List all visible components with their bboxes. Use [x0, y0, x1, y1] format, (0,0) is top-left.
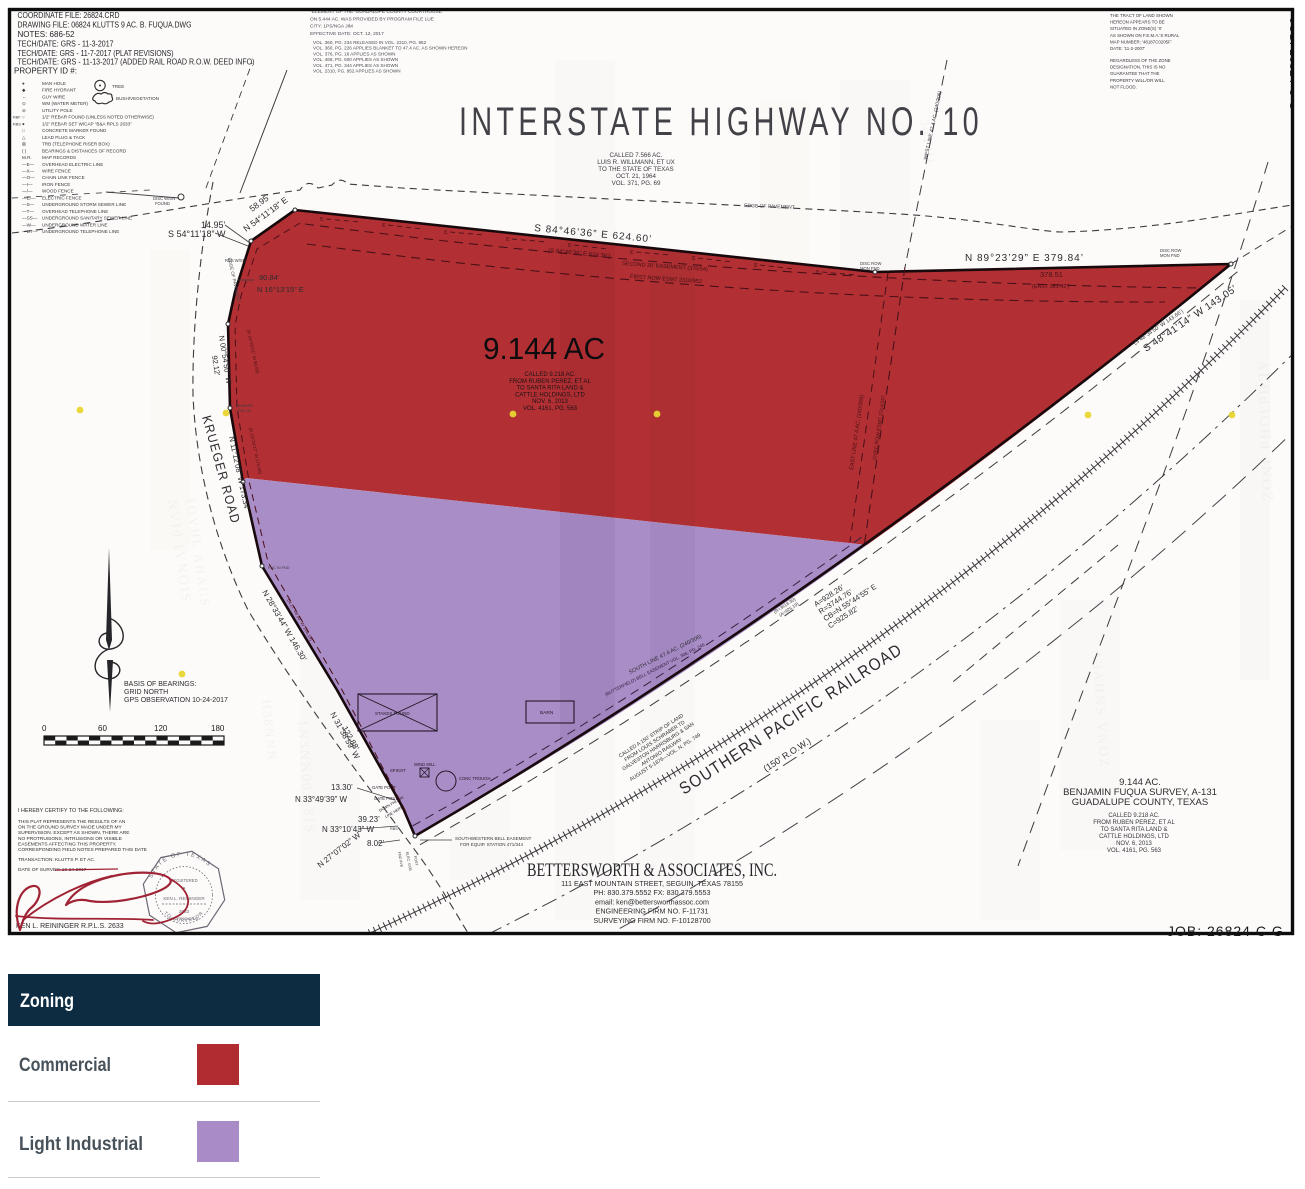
- svg-text:E: E: [692, 256, 696, 262]
- svg-text:CALLED 7.566 AC.: CALLED 7.566 AC.: [610, 152, 663, 159]
- svg-text:KEN L. REININGER R.P.L.S. 2633: KEN L. REININGER R.P.L.S. 2633: [16, 923, 124, 930]
- svg-text:NOT FLOOD.: NOT FLOOD.: [1110, 84, 1137, 89]
- svg-text:TO SANTA RITA LAND &: TO SANTA RITA LAND &: [1100, 827, 1167, 833]
- svg-text:FOR EQUIP. STATION 471/344: FOR EQUIP. STATION 471/344: [460, 842, 524, 847]
- svg-text:⊙: ⊙: [22, 101, 26, 106]
- svg-text:ENGINEERING FIRM NO. F-11731: ENGINEERING FIRM NO. F-11731: [596, 907, 709, 916]
- svg-text:REGARDLESS OF THE ZONE: REGARDLESS OF THE ZONE: [1110, 58, 1171, 63]
- svg-text:NOV. 6, 2013: NOV. 6, 2013: [532, 399, 568, 405]
- svg-text:PROPERTY WILL/OR WILL: PROPERTY WILL/OR WILL: [1110, 78, 1165, 83]
- svg-text:MAP RECORDS: MAP RECORDS: [42, 155, 76, 160]
- svg-text:—SS—: —SS—: [22, 216, 38, 221]
- svg-text:CHAIN LINK FENCE: CHAIN LINK FENCE: [42, 175, 85, 180]
- svg-text:email: ken@bettersworthassoc.c: email: ken@bettersworthassoc.com: [595, 897, 709, 906]
- svg-text:—O—: —O—: [22, 175, 35, 180]
- svg-text:NOV. 6, 2013: NOV. 6, 2013: [1116, 841, 1152, 847]
- svg-text:NO PROTRUSIONS, INTRUSIONS OR: NO PROTRUSIONS, INTRUSIONS OR VISIBLE: [18, 836, 122, 842]
- svg-text:—X—: —X—: [22, 168, 35, 173]
- svg-text:PROPERTY ID #:: PROPERTY ID #:: [14, 66, 77, 76]
- svg-text:←: ←: [22, 94, 27, 99]
- svg-text:ON THE GROUND SURVEY MADE UNDE: ON THE GROUND SURVEY MADE UNDER MY: [18, 825, 122, 831]
- svg-text:MAP NUMBER: '48187C0205F': MAP NUMBER: '48187C0205F': [1110, 39, 1172, 44]
- svg-text:VOL. 371, PG. 69: VOL. 371, PG. 69: [612, 180, 661, 187]
- svg-text:E: E: [320, 217, 324, 223]
- svg-text:TRANSACTION: KLUTTS P. ET AC.: TRANSACTION: KLUTTS P. ET AC.: [18, 857, 95, 863]
- svg-text:△: △: [22, 135, 26, 140]
- svg-text:GPS OBSERVATION 10-24-2017: GPS OBSERVATION 10-24-2017: [124, 697, 228, 704]
- svg-text:SPIGOT: SPIGOT: [390, 768, 406, 773]
- svg-text:—S—: —S—: [22, 202, 35, 207]
- svg-text:CONCRETE MARKER FOUND: CONCRETE MARKER FOUND: [42, 128, 107, 133]
- svg-text:60: 60: [98, 724, 107, 733]
- svg-text:VOL. 2310, PG. 952 APPLIES AS: VOL. 2310, PG. 952 APPLIES AS SHOWN: [313, 69, 401, 74]
- svg-text:SOUTHWESTERN BELL EASEMENT: SOUTHWESTERN BELL EASEMENT: [455, 836, 532, 841]
- svg-text:VOL. 360, PG. 234 RELEASED IN: VOL. 360, PG. 234 RELEASED IN VOL. 2310,…: [313, 40, 427, 45]
- svg-text:TECH/DATE: GRS - 11-3-2017: TECH/DATE: GRS - 11-3-2017: [18, 39, 114, 49]
- svg-text:RBF: RBF: [13, 116, 21, 120]
- svg-text:120: 120: [154, 724, 168, 733]
- svg-text:CORRESPONDING FIELD NOTES PREP: CORRESPONDING FIELD NOTES PREPARED THIS …: [18, 847, 147, 853]
- svg-text:GUARANTEE THAT THE: GUARANTEE THAT THE: [1110, 71, 1160, 76]
- svg-text:Commercial: Commercial: [19, 1055, 111, 1076]
- svg-text:VOL. 360, PG. 226 APPLIES BLAN: VOL. 360, PG. 226 APPLIES BLANKET TO 47.…: [313, 46, 467, 51]
- svg-text:MAN HOLE: MAN HOLE: [42, 81, 66, 86]
- svg-text:JOB: 26824 C G: JOB: 26824 C G: [1167, 923, 1284, 939]
- svg-text:⊘: ⊘: [22, 108, 26, 113]
- svg-text:N 33°10’43” W: N 33°10’43” W: [322, 825, 375, 834]
- svg-text:CALLED 9.218 AC.: CALLED 9.218 AC.: [524, 372, 576, 378]
- svg-text:LUIS R. WILLMANN, ET UX: LUIS R. WILLMANN, ET UX: [597, 159, 675, 166]
- svg-text:UNDERGROUND STORM SEWER LINE: UNDERGROUND STORM SEWER LINE: [42, 202, 126, 207]
- svg-text:1/2" REBAR SET W/CAP "B&A RPLS: 1/2" REBAR SET W/CAP "B&A RPLS 2633": [42, 121, 132, 126]
- svg-text:111 EAST MOUNTAIN STREET, SEGU: 111 EAST MOUNTAIN STREET, SEGUIN, TEXAS …: [561, 879, 743, 888]
- svg-text:CATTLE HOLDINGS, LTD: CATTLE HOLDINGS, LTD: [1099, 834, 1169, 840]
- svg-text:DRAWING FILE: 06824 KLUTTS 9 A: DRAWING FILE: 06824 KLUTTS 9 AC. B. FUQU…: [18, 20, 192, 30]
- svg-text:VOL. 4161, PG. 563: VOL. 4161, PG. 563: [1107, 848, 1162, 854]
- svg-text:—I—: —I—: [22, 182, 33, 187]
- svg-text:HEREON APPEARS TO BE: HEREON APPEARS TO BE: [1110, 20, 1165, 25]
- svg-text:VOL. 376, PG. 16 APPLIES AS SH: VOL. 376, PG. 16 APPLIES AS SHOWN: [313, 51, 395, 56]
- svg-text:RBS: RBS: [390, 827, 398, 831]
- svg-text:⊠: ⊠: [22, 142, 26, 147]
- svg-text:WIND MILL: WIND MILL: [414, 762, 436, 767]
- svg-text:FROM RUBEN PEREZ, ET AL: FROM RUBEN PEREZ, ET AL: [509, 379, 591, 385]
- svg-text:GATE POST: GATE POST: [372, 785, 396, 790]
- svg-text:MON FND: MON FND: [860, 266, 880, 271]
- svg-text:FNC IN FND: FNC IN FND: [268, 566, 290, 570]
- svg-text:VOL. 471, PG. 344 APPLIES AS S: VOL. 471, PG. 344 APPLIES AS SHOWN: [313, 63, 398, 68]
- svg-text:( ): ( ): [22, 148, 27, 153]
- svg-text:PH: 830.379.5552 FX: 830.379.: PH: 830.379.5552 FX: 830.379.5553: [593, 888, 710, 897]
- svg-text:CATTLE HOLDINGS, LTD: CATTLE HOLDINGS, LTD: [515, 392, 585, 398]
- svg-text:◆: ◆: [22, 88, 26, 93]
- svg-text:13.30’: 13.30’: [331, 783, 353, 792]
- svg-text:TRB (TELEPHONE RISER BOX): TRB (TELEPHONE RISER BOX): [42, 142, 110, 147]
- svg-text:STAKES FOUND: STAKES FOUND: [375, 711, 410, 716]
- svg-text:Zoning: Zoning: [20, 991, 74, 1012]
- svg-text:UNDERGROUND SANITARY SEWER LIN: UNDERGROUND SANITARY SEWER LINE: [42, 216, 132, 221]
- svg-text:BEARINGS & DISTANCES OF RECORD: BEARINGS & DISTANCES OF RECORD: [42, 148, 127, 153]
- svg-text:FROM RUBEN PEREZ, ET AL: FROM RUBEN PEREZ, ET AL: [1093, 820, 1175, 826]
- svg-text:N 89°23’29” E 379.84’: N 89°23’29” E 379.84’: [965, 253, 1084, 264]
- svg-text:BETTERSWORTH & ASSOCIATES, INC: BETTERSWORTH & ASSOCIATES, INC.: [527, 860, 777, 881]
- svg-text:—E—: —E—: [22, 162, 35, 167]
- svg-text:SURVEYING FIRM NO. F-10128700: SURVEYING FIRM NO. F-10128700: [593, 916, 710, 925]
- svg-text:GRID NORTH: GRID NORTH: [124, 689, 168, 696]
- svg-text:E: E: [382, 223, 386, 229]
- svg-text:ON 5.444 AC. WAS PROVIDED BY P: ON 5.444 AC. WAS PROVIDED BY PROGRAM FIL…: [310, 16, 434, 22]
- svg-text:(EAST 381.42’): (EAST 381.42’): [1032, 284, 1070, 290]
- svg-text:WM (WATER METER): WM (WATER METER): [42, 101, 88, 106]
- svg-text:180: 180: [211, 724, 225, 733]
- svg-text:E: E: [816, 270, 820, 276]
- svg-text:EFFECTIVE DATE: OCT. 12, 2017: EFFECTIVE DATE: OCT. 12, 2017: [310, 31, 384, 37]
- svg-text:90.84’: 90.84’: [259, 273, 280, 282]
- svg-text:○: ○: [22, 115, 25, 120]
- svg-text:●: ●: [22, 81, 25, 86]
- svg-text:E: E: [444, 230, 448, 236]
- svg-text:—W—: —W—: [22, 222, 36, 227]
- svg-text:UTILITY POLE: UTILITY POLE: [42, 108, 73, 113]
- svg-text:0: 0: [42, 724, 47, 733]
- svg-text:M.R.: M.R.: [22, 155, 32, 160]
- svg-text:CALLED 9.218 AC.: CALLED 9.218 AC.: [1108, 813, 1160, 819]
- svg-text:AS SHOWN ON F.E.M.A.'S RURAL: AS SHOWN ON F.E.M.A.'S RURAL: [1110, 33, 1180, 38]
- svg-text:UNDERGROUND TELEPHONE LINE: UNDERGROUND TELEPHONE LINE: [42, 229, 119, 234]
- svg-text:MON FND: MON FND: [1160, 253, 1180, 258]
- svg-text:INTERSTATE HIGHWAY NO. 10: INTERSTATE HIGHWAY NO. 10: [459, 100, 983, 144]
- svg-text:GUADALUPE COUNTY, TEXAS: GUADALUPE COUNTY, TEXAS: [1072, 797, 1208, 808]
- svg-text:I HEREBY CERTIFY TO THE FOLLOW: I HEREBY CERTIFY TO THE FOLLOWING:: [18, 808, 124, 814]
- svg-text:OVERHEAD TELEPHONE LINE: OVERHEAD TELEPHONE LINE: [42, 209, 108, 214]
- svg-text:39.23’: 39.23’: [358, 815, 380, 824]
- svg-text:IRON FENCE: IRON FENCE: [42, 182, 70, 187]
- svg-text:DOWNED: DOWNED: [236, 404, 254, 408]
- svg-text:WIRE FENCE: WIRE FENCE: [42, 168, 71, 173]
- svg-text:VOL. 468, PG. 600 APPLIES AS S: VOL. 468, PG. 600 APPLIES AS SHOWN: [313, 57, 398, 62]
- svg-text:E: E: [754, 263, 758, 269]
- svg-text:FOUND: FOUND: [155, 201, 170, 206]
- svg-text:SUPERVISION. EXCEPT AS SHOWN,: SUPERVISION. EXCEPT AS SHOWN, THERE ARE: [18, 830, 129, 836]
- svg-text:□: □: [22, 128, 25, 133]
- svg-text:N 16°13’15” E: N 16°13’15” E: [257, 285, 304, 294]
- svg-text:—UT—: —UT—: [22, 229, 38, 234]
- svg-text:WOOD FENCE: WOOD FENCE: [42, 189, 74, 194]
- svg-text:RBS: RBS: [13, 122, 21, 126]
- svg-text:SITUATED IN ZONE(S) 'X': SITUATED IN ZONE(S) 'X': [1110, 26, 1162, 31]
- svg-text:8.02’: 8.02’: [367, 839, 385, 848]
- svg-text:TO SANTA RITA LAND &: TO SANTA RITA LAND &: [516, 386, 583, 392]
- svg-text:THIS PLAT REPRESENTS THE RESUL: THIS PLAT REPRESENTS THE RESULTS OF AN: [18, 819, 126, 825]
- svg-text:—/—: —/—: [22, 189, 33, 194]
- svg-text:LEAD PLUG & TACK: LEAD PLUG & TACK: [42, 135, 86, 140]
- svg-text:THE TRACT OF LAND SHOWN: THE TRACT OF LAND SHOWN: [1110, 13, 1173, 18]
- svg-text:E: E: [630, 250, 634, 256]
- svg-text:ELECTRIC FENCE: ELECTRIC FENCE: [42, 195, 82, 200]
- svg-text:TREE: TREE: [112, 84, 124, 89]
- svg-text:KEN L. REININGER: KEN L. REININGER: [163, 896, 205, 901]
- svg-text:COORDINATE FILE: 26824.CRD: COORDINATE FILE: 26824.CRD: [18, 10, 120, 20]
- svg-text:CONC TROUGH: CONC TROUGH: [459, 776, 491, 781]
- svg-text:CITY: 1PS/NGA JIM: CITY: 1PS/NGA JIM: [310, 24, 353, 30]
- svg-text:TO THE STATE OF TEXAS: TO THE STATE OF TEXAS: [598, 166, 673, 173]
- svg-text:●: ●: [22, 121, 25, 126]
- svg-text:—E/—: —E/—: [22, 195, 36, 200]
- svg-text:NOTES: 686-52: NOTES: 686-52: [18, 29, 75, 39]
- svg-text:BASIS OF BEARINGS:: BASIS OF BEARINGS:: [124, 681, 196, 688]
- svg-text:FNC IN: FNC IN: [238, 409, 251, 413]
- svg-text:9.144 AC: 9.144 AC: [483, 331, 605, 366]
- svg-text:FIRE HYDRANT: FIRE HYDRANT: [42, 88, 76, 93]
- svg-text:OCT. 21, 1964: OCT. 21, 1964: [616, 173, 656, 180]
- svg-text:DATE: '11-2-2007': DATE: '11-2-2007': [1110, 46, 1145, 51]
- svg-text:1/2" REBAR FOUND (UNLESS NOTED: 1/2" REBAR FOUND (UNLESS NOTED OTHERWISE…: [42, 115, 154, 120]
- svg-text:E: E: [506, 237, 510, 243]
- svg-text:EASEMENTS AFFECTING THIS PROPE: EASEMENTS AFFECTING THIS PROPERTY.: [18, 841, 116, 847]
- svg-text:VOL. 4161, PG. 563: VOL. 4161, PG. 563: [523, 406, 578, 412]
- svg-text:E: E: [568, 243, 572, 249]
- svg-text:OVERHEAD ELECTRIC LINE: OVERHEAD ELECTRIC LINE: [42, 162, 103, 167]
- svg-text:378.51: 378.51: [1040, 270, 1063, 279]
- svg-text:UNDERGROUND WATER LINE: UNDERGROUND WATER LINE: [42, 222, 108, 227]
- svg-text:BARN: BARN: [540, 710, 554, 716]
- svg-text:DESIGNATION, THIS IS NO: DESIGNATION, THIS IS NO: [1110, 65, 1166, 70]
- svg-text:—T—: —T—: [22, 209, 34, 214]
- svg-text:N 33°49’39” W: N 33°49’39” W: [295, 795, 348, 804]
- svg-text:GUY WIRE: GUY WIRE: [42, 94, 65, 99]
- svg-text:Light Industrial: Light Industrial: [19, 1134, 143, 1155]
- svg-text:BUSH/VEGETATION: BUSH/VEGETATION: [116, 96, 159, 101]
